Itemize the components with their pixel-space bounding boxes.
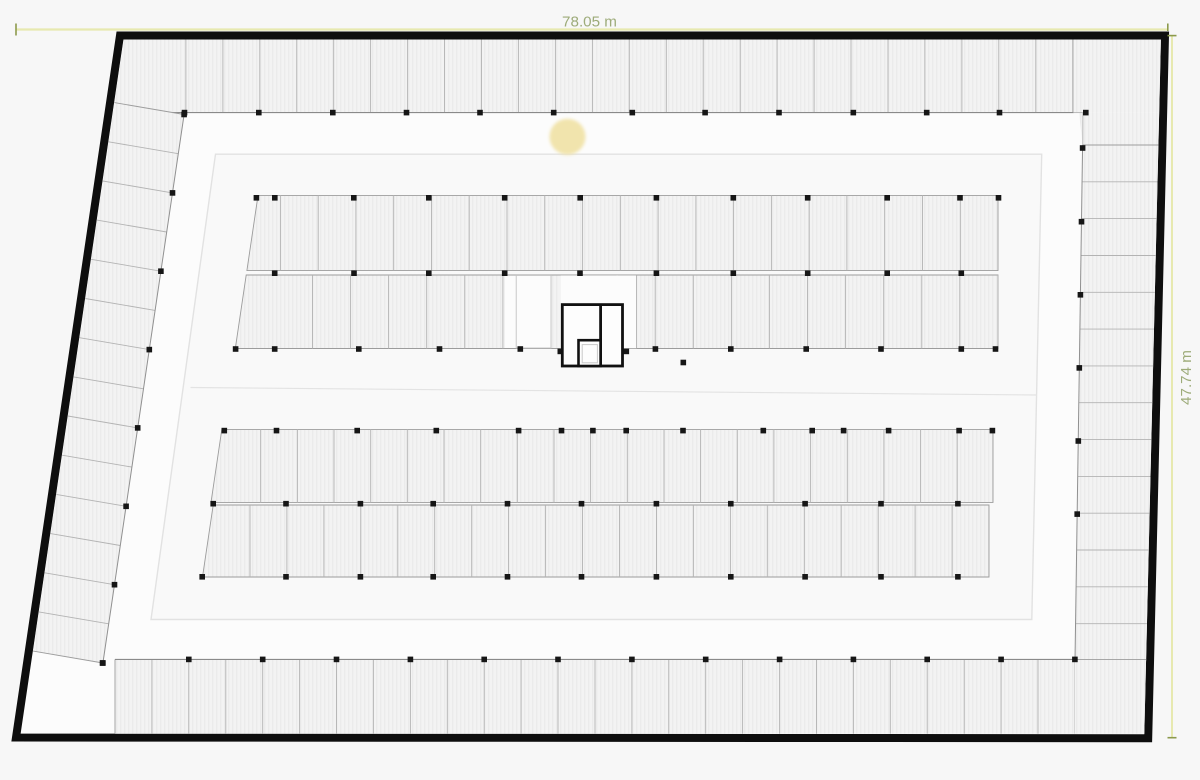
svg-text:47.74 m: 47.74 m	[1178, 350, 1195, 405]
svg-text:78.05 m: 78.05 m	[562, 14, 617, 31]
